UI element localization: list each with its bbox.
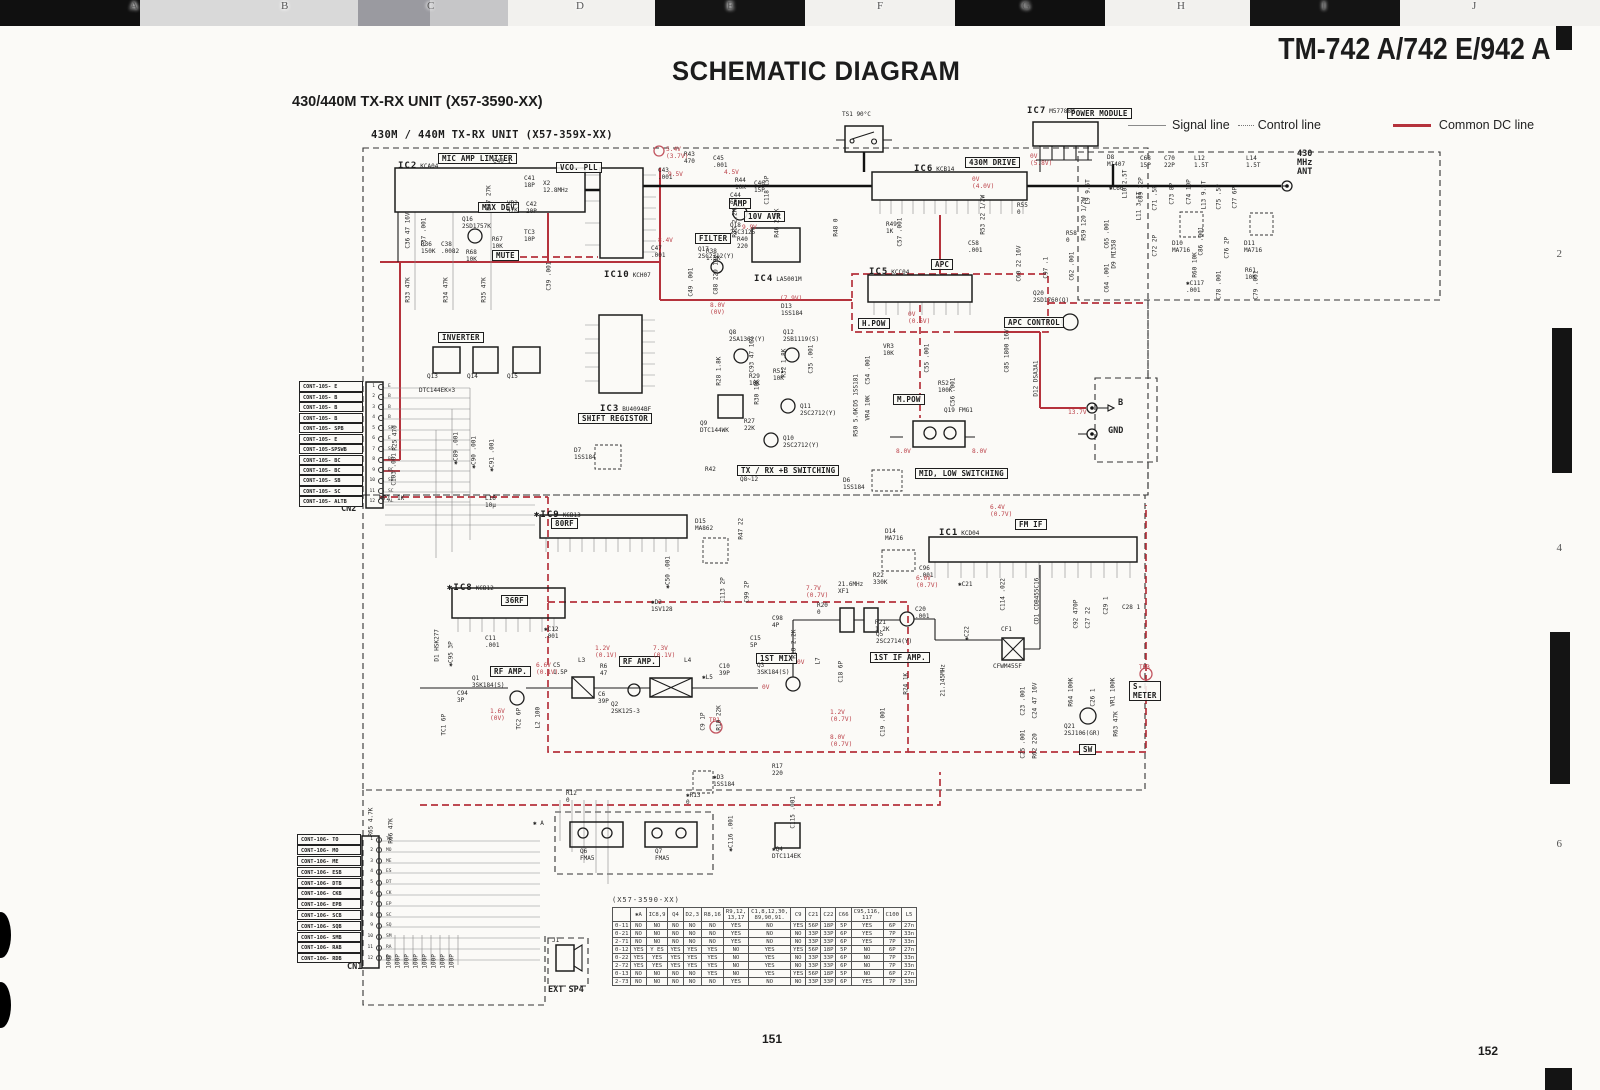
component-label: D10 MA716 bbox=[1172, 241, 1190, 254]
connector-pin-number: 11 bbox=[365, 489, 375, 494]
component-label: 21.145MHz bbox=[940, 664, 947, 697]
connector-pin-circle bbox=[376, 858, 382, 864]
table-row: 2-71NONONONONOYESNONO33P33P6PYES7P33n bbox=[613, 938, 917, 946]
table-header-cell: L5 bbox=[902, 908, 917, 922]
connector-pin-number: 10 bbox=[365, 478, 375, 483]
ic-ref: ✱IC8 bbox=[447, 583, 473, 593]
table-cell: NO bbox=[631, 930, 646, 938]
component-label: D13 1SS184 bbox=[781, 304, 803, 317]
table-cell: NO bbox=[791, 938, 806, 946]
connector-pin-circle bbox=[378, 436, 384, 442]
component-label: ✱R13 0 bbox=[686, 793, 700, 806]
connector-pin-circle bbox=[378, 467, 384, 473]
component-label: Q10 2SC2712(Y) bbox=[783, 436, 819, 449]
connector-row: CONT-106- SCB8SC bbox=[297, 910, 392, 921]
component-label: D5 1SS181 bbox=[853, 374, 860, 407]
connector-row: CONT-105- B3B bbox=[299, 402, 391, 413]
component-label: C11 .001 bbox=[485, 636, 499, 649]
component-label: 100P bbox=[449, 954, 456, 968]
component-label: ✱C91 .001 bbox=[489, 439, 496, 472]
connector-pin-number: 6 bbox=[365, 436, 375, 441]
schematic-page: ABCDEFGHIJ 246 SCHEMATIC DIAGRAM TM-742 … bbox=[0, 0, 1600, 1090]
connector-pin-code: AL bbox=[388, 499, 394, 504]
component-label: C45 .001 bbox=[713, 156, 727, 169]
connector-pin-circle bbox=[378, 478, 384, 484]
connector-row-label: CONT-106- RAB bbox=[297, 942, 361, 952]
table-row: 0-22YESYESYESYESYESNOYESNO33P33P6PNO7P33… bbox=[613, 954, 917, 962]
component-label: Q16 2SD1757K bbox=[462, 217, 491, 230]
voltage-label: (7.9V) bbox=[780, 296, 802, 303]
component-label: Q11 2SC2712(Y) bbox=[800, 404, 836, 417]
connector-row-label: CONT-106- SQB bbox=[297, 921, 361, 931]
component-label: C75 .5P bbox=[1216, 184, 1223, 209]
component-label: R10 22K bbox=[716, 705, 723, 730]
component-label: C49 .001 bbox=[688, 268, 695, 297]
ic-label: IC1KCD04 bbox=[939, 520, 979, 539]
component-label: R62 220 bbox=[1032, 733, 1039, 758]
component-label: R30 10K bbox=[754, 379, 761, 404]
connector-pin-circle bbox=[376, 837, 382, 843]
ic-label: IC5KCC04 bbox=[869, 259, 909, 278]
component-label: ✱C12 .001 bbox=[544, 627, 558, 640]
component-label: R33 47K bbox=[405, 277, 412, 302]
component-label: ✱C117 .001 bbox=[1186, 281, 1204, 294]
table-cell: 5P bbox=[836, 922, 851, 930]
component-label: ✱ A bbox=[533, 821, 544, 828]
table-cell: 33P bbox=[806, 930, 821, 938]
ic-part: KCB13 bbox=[563, 512, 581, 519]
component-label: CF1 bbox=[1001, 627, 1012, 634]
voltage-label: 1.2V (0.1V) bbox=[595, 646, 617, 659]
component-label: C77 6P bbox=[1232, 187, 1239, 209]
connector-pin-code: BC bbox=[388, 457, 394, 462]
table-header-cell: C1,8,12,30, 89,90,91. bbox=[749, 908, 791, 922]
connector-pin-code: TO bbox=[386, 837, 392, 842]
connector-pin-code: E bbox=[388, 436, 391, 441]
voltage-label: 0V (4.0V) bbox=[972, 177, 994, 190]
table-cell: YES bbox=[723, 938, 748, 946]
component-label: C9 1P bbox=[700, 713, 707, 731]
table-cell: NO bbox=[631, 922, 646, 930]
table-cell: YES bbox=[851, 938, 883, 946]
table-cell: NO bbox=[631, 970, 646, 978]
connector-row-label: CONT-106- ME bbox=[297, 856, 361, 866]
component-label: C73 8P bbox=[1169, 183, 1176, 205]
component-label: C23 .001 bbox=[1020, 687, 1027, 716]
connector-pin-circle bbox=[376, 880, 382, 886]
table-header-cell: C66 bbox=[836, 908, 851, 922]
connector-row: CONT-105- B2B bbox=[299, 391, 391, 402]
table-cell: NO bbox=[683, 930, 701, 938]
component-label: C57 .001 bbox=[897, 218, 904, 247]
table-cell: YES bbox=[723, 922, 748, 930]
component-label: Q3 3SK184(S) bbox=[757, 663, 790, 676]
component-label: C27 22 bbox=[1085, 607, 1092, 629]
ic-part: LA5001M bbox=[776, 276, 801, 283]
table-row: 0-12YESY ESYESYESYESNOYESYES56P18P5PNO6P… bbox=[613, 946, 917, 954]
ic-part: KCD04 bbox=[961, 530, 979, 537]
ic-part: KCC04 bbox=[891, 269, 909, 276]
table-cell: NO bbox=[749, 922, 791, 930]
table-cell: NO bbox=[791, 978, 806, 986]
component-label: ✱D3 1SS184 bbox=[713, 775, 735, 788]
voltage-label: 5.4V (3.7V) bbox=[666, 147, 688, 160]
table-header-cell: R8,16 bbox=[702, 908, 724, 922]
connector-pin-number: 1 bbox=[365, 384, 375, 389]
table-cell: YES bbox=[683, 946, 701, 954]
connector-pin-circle bbox=[378, 415, 384, 421]
table-cell: NO bbox=[646, 970, 668, 978]
table-cell: 33P bbox=[806, 962, 821, 970]
table-cell: YES bbox=[791, 946, 806, 954]
ic-part: BU4094BF bbox=[622, 406, 651, 413]
table-cell: YES bbox=[851, 922, 883, 930]
connector-pin-circle bbox=[376, 869, 382, 875]
component-label: D8 MI407 bbox=[1107, 155, 1125, 168]
connector-pin-circle bbox=[378, 498, 384, 504]
voltage-label: 8.0V bbox=[972, 449, 987, 456]
table-cell: 6P bbox=[836, 978, 851, 986]
table-cell: NO bbox=[749, 978, 791, 986]
component-label: TC1 6P bbox=[441, 714, 448, 736]
voltage-label: 8.0V bbox=[896, 449, 911, 456]
table-cell: Y ES bbox=[646, 946, 668, 954]
connector-row-label: CONT-105- BC bbox=[299, 465, 363, 475]
connector-pin-code: MO bbox=[386, 848, 392, 853]
connector-row: CONT-105- E1E bbox=[299, 381, 391, 392]
table-cell: NO bbox=[851, 970, 883, 978]
table-cell: 33P bbox=[821, 938, 836, 946]
ic-ref: IC1 bbox=[939, 528, 958, 538]
component-label: R40 220 bbox=[737, 237, 748, 250]
connector-pin-circle bbox=[378, 457, 384, 463]
page-number-left: 151 bbox=[762, 1032, 782, 1046]
component-label: 100P bbox=[431, 954, 438, 968]
component-label: C68 15P bbox=[1140, 156, 1151, 169]
table-cell: NO bbox=[668, 922, 683, 930]
component-label: VR1 100K bbox=[1110, 678, 1117, 707]
component-label: R58 0 bbox=[1066, 231, 1077, 244]
component-label: C55 .001 bbox=[924, 344, 931, 373]
component-label: L9 9.5T bbox=[1085, 179, 1092, 204]
component-label: R63 47K bbox=[1113, 711, 1120, 736]
table-cell: YES bbox=[791, 970, 806, 978]
component-label: TC2 6P bbox=[516, 708, 523, 730]
table-cell: 33P bbox=[821, 930, 836, 938]
table-cell: 5P bbox=[836, 946, 851, 954]
table-cell: NO bbox=[668, 978, 683, 986]
component-label: R67 10K bbox=[492, 237, 503, 250]
block-label: POWER MODULE bbox=[1067, 108, 1132, 119]
voltage-label: 8.0V (0V) bbox=[710, 303, 725, 316]
ic-label: ✱IC8KCB12 bbox=[447, 575, 494, 594]
table-cell: YES bbox=[631, 962, 646, 970]
voltage-label: 13.7V bbox=[1068, 410, 1087, 417]
component-label: X2 12.8MHz bbox=[543, 181, 568, 194]
connector-pin-code: B bbox=[388, 415, 391, 420]
table-cell: NO bbox=[749, 930, 791, 938]
component-label: C44 6P bbox=[730, 193, 741, 206]
connector-row-label: CONT-106- EPB bbox=[297, 899, 361, 909]
voltage-label: 0V bbox=[797, 660, 804, 667]
component-label: R18 2.2K bbox=[791, 630, 798, 659]
component-label: ✱L5 bbox=[702, 675, 713, 682]
table-cell: NO bbox=[646, 978, 668, 986]
connector-pin-circle bbox=[378, 394, 384, 400]
component-label: C78 .001 bbox=[1216, 271, 1223, 300]
ic-ref: IC2 bbox=[398, 161, 417, 171]
ic-ref: IC10 bbox=[604, 270, 630, 280]
component-label: ✱Q4 DTC114EK bbox=[772, 847, 801, 860]
component-label: C38 .0082 bbox=[441, 242, 459, 255]
table-cell: NO bbox=[683, 938, 701, 946]
component-label: 100P bbox=[395, 954, 402, 968]
block-label: 1ST IF AMP. bbox=[870, 652, 930, 663]
table-cell: 7P bbox=[883, 954, 901, 962]
table-cell: 6P bbox=[836, 954, 851, 962]
component-label: EXT SP4 bbox=[548, 986, 584, 995]
table-cell: 33n bbox=[902, 978, 917, 986]
connector-pin-number: 10 bbox=[363, 934, 373, 939]
component-label: R45 2.2K bbox=[732, 209, 739, 238]
connector-pin-circle bbox=[376, 945, 382, 951]
table-header-cell: R9,12, 13,17 bbox=[723, 908, 748, 922]
ic-part: KCB14 bbox=[936, 166, 954, 173]
table-cell: 0-11 bbox=[613, 922, 631, 930]
component-label: Q8~12 bbox=[740, 477, 758, 484]
table-cell: 27n bbox=[902, 970, 917, 978]
voltage-label: 7.3V (0.1V) bbox=[653, 646, 675, 659]
component-label: R44 10K bbox=[735, 178, 746, 191]
connector-pin-code: SM bbox=[386, 934, 392, 939]
connector-pin-number: 9 bbox=[365, 468, 375, 473]
table-cell: YES bbox=[702, 962, 724, 970]
table-header-cell: C22 bbox=[821, 908, 836, 922]
connector-pin-circle bbox=[376, 923, 382, 929]
voltage-label: 4.5V bbox=[724, 170, 739, 177]
component-label: R55 0 bbox=[1017, 203, 1028, 216]
connector-row: CONT-106- EPB7EP bbox=[297, 899, 392, 910]
voltage-label: 6.6V (0.1V) bbox=[536, 663, 558, 676]
component-label: R34 47K bbox=[443, 277, 450, 302]
table-cell: YES bbox=[723, 930, 748, 938]
table-row: 2-73NONONONONOYESNONO33P33P6PYES7P33n bbox=[613, 978, 917, 986]
component-label: C92 470P bbox=[1073, 600, 1080, 629]
component-label: C56 .001 bbox=[950, 378, 957, 407]
table-cell: 0-22 bbox=[613, 954, 631, 962]
block-label: FM IF bbox=[1015, 519, 1047, 530]
ic-label: IC10KCH07 bbox=[604, 262, 651, 281]
table-cell: 27n bbox=[902, 922, 917, 930]
connector-row-label: CONT-106- RDB bbox=[297, 953, 361, 963]
table-cell: YES bbox=[668, 946, 683, 954]
table-cell: 33n bbox=[902, 938, 917, 946]
variant-table-grid: ✱AIC8,9Q4D2,3R8,16R9,12, 13,17C1,8,12,30… bbox=[612, 907, 917, 986]
block-label: M.POW bbox=[893, 394, 925, 405]
connector-row-label: CONT-106- DTB bbox=[297, 878, 361, 888]
component-label: R35 47K bbox=[481, 277, 488, 302]
block-label: 36RF bbox=[501, 595, 528, 606]
table-cell: 0-12 bbox=[613, 946, 631, 954]
connector-row-label: CONT-105- E bbox=[299, 434, 363, 444]
component-label: C114 .022 bbox=[1000, 578, 1007, 611]
table-cell: YES bbox=[683, 962, 701, 970]
connector-row: CONT-105- B4B bbox=[299, 412, 391, 423]
connector-row: CONT-106- TO1TO bbox=[297, 834, 392, 845]
table-cell: 0-13 bbox=[613, 970, 631, 978]
connector-row: CONT-105- BC9BC bbox=[299, 465, 394, 476]
connector-row: CONT-106- RDB12RD bbox=[297, 953, 392, 964]
voltage-label: 7.7V (0.7V) bbox=[806, 586, 828, 599]
component-label: R12 0 bbox=[566, 791, 577, 804]
block-label: 430M DRIVE bbox=[965, 157, 1020, 168]
component-label: R6 47 bbox=[600, 664, 607, 677]
component-label: C65 .001 bbox=[1104, 220, 1111, 249]
component-label: 100P bbox=[440, 954, 447, 968]
table-cell: NO bbox=[683, 970, 701, 978]
component-label: Q8 2SA1362(Y) bbox=[729, 330, 765, 343]
table-cell: YES bbox=[749, 946, 791, 954]
connector-pin-code: B bbox=[388, 405, 391, 410]
voltage-label: 8.4V bbox=[658, 238, 673, 245]
component-label: 21.6MHz XF1 bbox=[838, 582, 863, 595]
component-label: C15 5P bbox=[750, 636, 761, 649]
block-label: FILTER bbox=[695, 233, 731, 244]
component-label: VR2 47K bbox=[507, 201, 518, 214]
component-label: L11 3.5T bbox=[1136, 192, 1143, 221]
connector-row: CONT-106- DTB5DT bbox=[297, 877, 392, 888]
component-label: C39 .001 bbox=[546, 262, 553, 291]
table-header-cell bbox=[613, 908, 631, 922]
table-cell: 6P bbox=[836, 930, 851, 938]
component-label: TS1 90°C bbox=[842, 112, 871, 119]
component-label: C28 1 bbox=[1122, 605, 1140, 612]
connector-row: CONT-105- SC11SC bbox=[299, 486, 394, 497]
connector-pin-circle bbox=[376, 934, 382, 940]
block-label: VCO. PLL bbox=[556, 162, 602, 173]
table-cell: NO bbox=[749, 938, 791, 946]
ic-label: IC7M57788M bbox=[1027, 98, 1075, 117]
component-label: C115 .001 bbox=[790, 796, 797, 829]
connector-row-label: CONT-106- SMB bbox=[297, 932, 361, 942]
component-label: L7 bbox=[815, 657, 822, 664]
component-label: D7 1SS184 bbox=[574, 448, 596, 461]
connector-row: CONT-105-SPSWB7SS bbox=[299, 444, 394, 455]
component-label: Q2 2SK125-3 bbox=[611, 702, 640, 715]
table-cell: NO bbox=[851, 954, 883, 962]
connector-row-label: CONT-106- MO bbox=[297, 845, 361, 855]
table-cell: 7P bbox=[883, 962, 901, 970]
block-label: TX / RX +B SWITCHING bbox=[737, 465, 839, 476]
component-label: Q15 bbox=[507, 374, 518, 381]
table-cell: YES bbox=[791, 922, 806, 930]
connector-pin-circle bbox=[378, 446, 384, 452]
table-cell: 18P bbox=[821, 922, 836, 930]
block-label: H.POW bbox=[858, 318, 890, 329]
component-label: Q6 FMA5 bbox=[580, 849, 594, 862]
connector-row: CONT-105- ALTB12AL bbox=[299, 496, 394, 507]
table-cell: 33P bbox=[821, 962, 836, 970]
connector-pin-number: 7 bbox=[365, 447, 375, 452]
block-label: APC CONTROL bbox=[1004, 317, 1064, 328]
component-label: L4 bbox=[684, 658, 691, 665]
table-header-cell: C9 bbox=[791, 908, 806, 922]
table-cell: NO bbox=[646, 930, 668, 938]
component-label: R49 1K bbox=[886, 222, 897, 235]
component-label: R38 1.5K bbox=[706, 249, 720, 262]
component-label: C76 2P bbox=[1224, 237, 1231, 259]
connector-pin-code: RD bbox=[386, 956, 392, 961]
table-row: 0-21NONONONONOYESNONO33P33P6PYES7P33n bbox=[613, 930, 917, 938]
voltage-label: 6.0V (0.7V) bbox=[916, 576, 938, 589]
connector-row-label: CONT-105- BC bbox=[299, 455, 363, 465]
component-label: ✱C95 3P bbox=[448, 641, 455, 666]
component-label: Q1 3SK184(S) bbox=[472, 676, 505, 689]
component-label: ✱C89 .001 bbox=[453, 432, 460, 465]
component-label: ✱C21 bbox=[958, 582, 972, 589]
table-cell: NO bbox=[668, 938, 683, 946]
table-cell: 33n bbox=[902, 930, 917, 938]
table-cell: YES bbox=[749, 970, 791, 978]
connector-row: CONT-106- RAB11RA bbox=[297, 942, 392, 953]
component-label: L10 2.5T bbox=[1122, 170, 1129, 199]
table-cell: 7P bbox=[883, 978, 901, 986]
table-cell: NO bbox=[702, 922, 724, 930]
table-cell: YES bbox=[646, 954, 668, 962]
component-label: L13 9.5T bbox=[1201, 181, 1208, 210]
table-cell: NO bbox=[791, 954, 806, 962]
table-cell: 6P bbox=[883, 922, 901, 930]
component-label: C72 2P bbox=[1152, 235, 1159, 257]
connector-row: CONT-106- CKB6CK bbox=[297, 888, 392, 899]
voltage-label: 0V (5.8V) bbox=[1030, 154, 1052, 167]
table-header-cell: C100 bbox=[883, 908, 901, 922]
connector-row-label: CONT-105- SC bbox=[299, 486, 363, 496]
component-label: R27 22K bbox=[744, 419, 755, 432]
connector-pin-code: SC bbox=[388, 489, 394, 494]
component-label: D6 1SS184 bbox=[843, 478, 865, 491]
connector-row: CONT-106- SMB10SM bbox=[297, 931, 392, 942]
table-cell: 7P bbox=[883, 930, 901, 938]
connector-pin-number: 9 bbox=[363, 923, 373, 928]
component-label: B bbox=[1118, 399, 1123, 408]
connector-pin-circle bbox=[378, 384, 384, 390]
component-label: L2 100 bbox=[535, 707, 542, 729]
connector-pin-code: ME bbox=[386, 859, 392, 864]
ic-label: ✱IC9KCB13 bbox=[534, 502, 581, 521]
component-label: R46 2.2K bbox=[774, 209, 781, 238]
ic-label: IC6KCB14 bbox=[914, 156, 954, 175]
connector-row-label: CONT-106- SCB bbox=[297, 910, 361, 920]
table-cell: 56P bbox=[806, 922, 821, 930]
component-label: Q7 FMA5 bbox=[655, 849, 669, 862]
table-cell: NO bbox=[631, 938, 646, 946]
component-label: C118 15P bbox=[764, 176, 771, 205]
table-cell: NO bbox=[646, 938, 668, 946]
table-cell: NO bbox=[683, 978, 701, 986]
ic-ref: IC3 bbox=[600, 404, 619, 414]
table-cell: 33P bbox=[806, 954, 821, 962]
component-label: C85 1800 16V bbox=[1004, 329, 1011, 372]
table-cell: NO bbox=[723, 970, 748, 978]
connector-pin-code: SC bbox=[386, 913, 392, 918]
component-label: Q21 2SJ106(GR) bbox=[1064, 724, 1100, 737]
connector-pin-code: CK bbox=[386, 891, 392, 896]
component-label: ✱C22 bbox=[964, 626, 971, 640]
table-cell: 56P bbox=[806, 970, 821, 978]
connector-pin-code: ES bbox=[386, 869, 392, 874]
connector-pin-number: 5 bbox=[363, 880, 373, 885]
